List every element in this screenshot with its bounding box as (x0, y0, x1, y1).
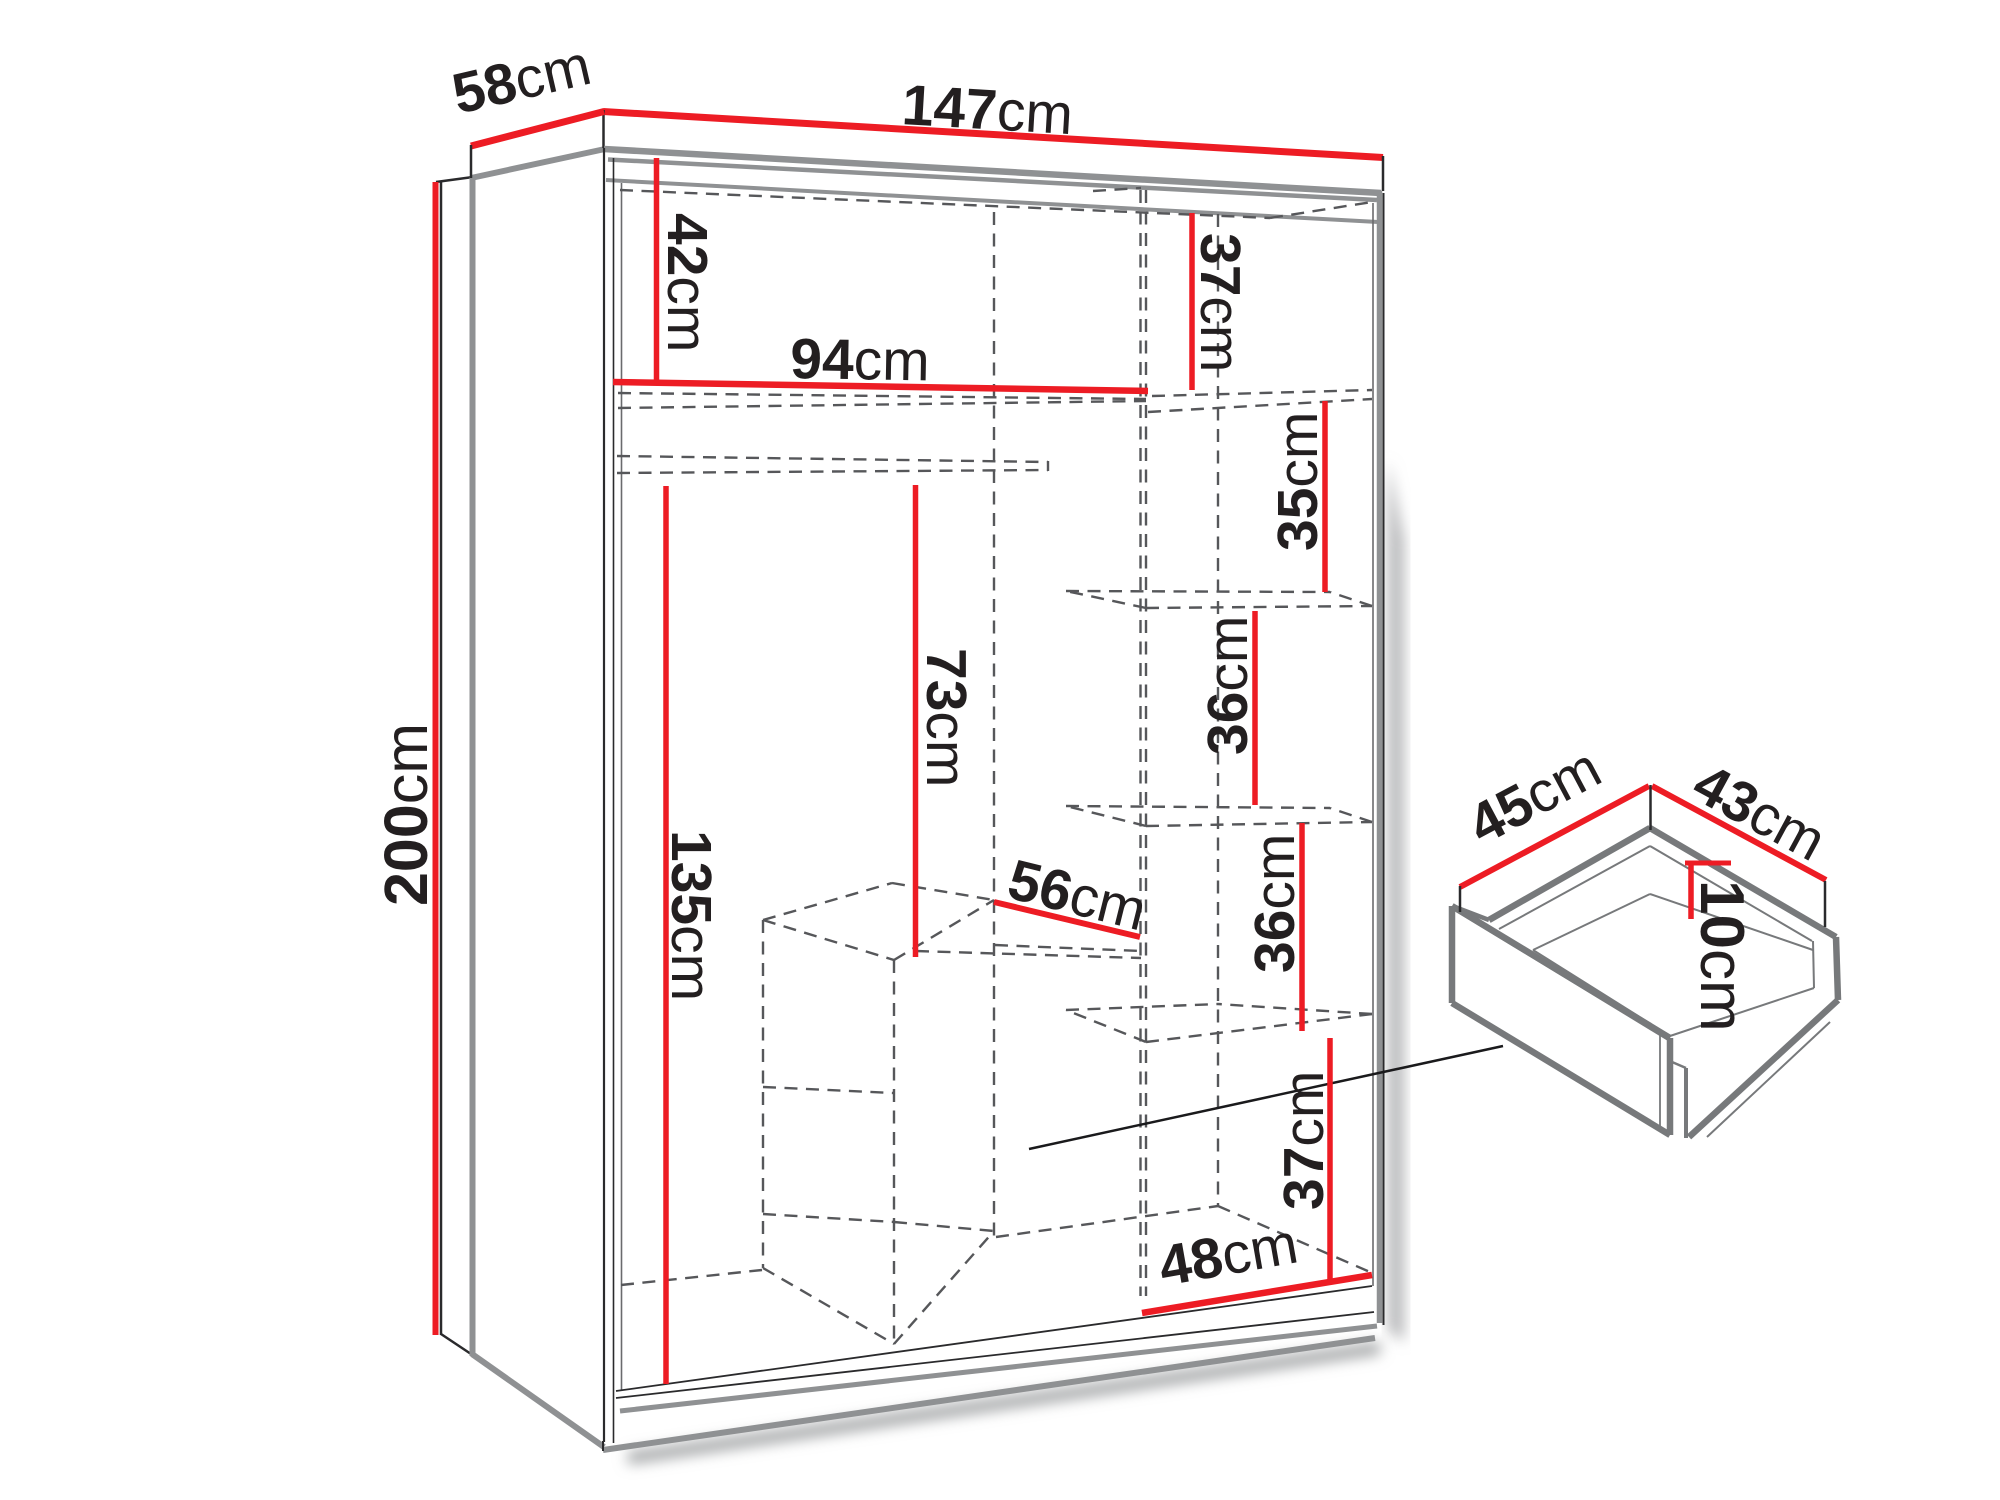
svg-text:36cm: 36cm (1196, 616, 1260, 755)
svg-text:147cm: 147cm (900, 73, 1075, 147)
svg-text:135cm: 135cm (659, 830, 723, 1001)
svg-text:35cm: 35cm (1266, 412, 1330, 551)
svg-text:10cm: 10cm (1687, 880, 1756, 1032)
svg-text:37cm: 37cm (1188, 233, 1252, 372)
svg-text:94cm: 94cm (790, 327, 930, 393)
svg-text:42cm: 42cm (655, 213, 719, 352)
svg-text:73cm: 73cm (914, 648, 978, 787)
svg-text:37cm: 37cm (1272, 1071, 1336, 1210)
svg-text:36cm: 36cm (1243, 834, 1307, 973)
svg-text:200cm: 200cm (372, 723, 440, 906)
